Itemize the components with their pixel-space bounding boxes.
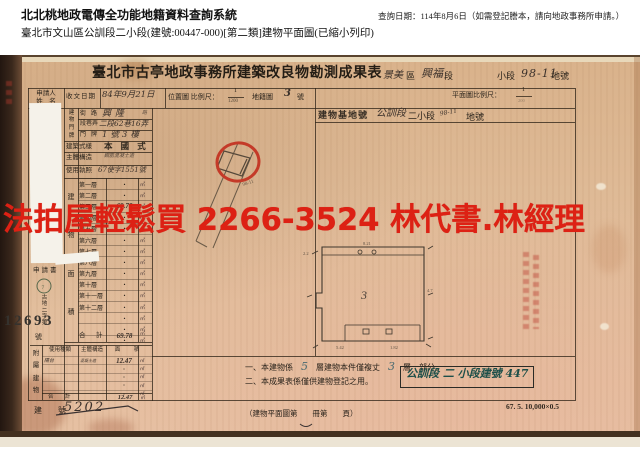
site-scribble: 98-11 [440,109,458,119]
subsection-label: 小段 [497,71,515,81]
floor-row: 第一層・㎡ [78,178,152,189]
annex-row: ・㎡ [42,364,152,372]
location-sketch-parcel [217,151,250,176]
floor-row: 第十一層・㎡ [78,290,152,301]
vertical-label-char: 面 [68,270,75,278]
annex-total-value: 12.47 [110,394,141,401]
page: 北北桃地政電傳全功能地籍資料查詢系統 查詢日期：114年8月6日（如需登記謄本，… [0,0,640,453]
plan-scale-label: 平面圖比例尺： [452,91,501,99]
floor-row: 第十二層・㎡ [78,301,152,312]
location-scale-label: 位置圖 比例尺： [168,93,219,101]
plan-floor-mark: 3 [360,288,367,302]
street-label: 街路 [80,111,102,118]
annex-area: ・ [108,374,140,381]
floor-label: 第十層 [78,280,109,289]
form-title: 臺北市古亭地政事務所建築改良物勘測成果表 [92,66,382,82]
style-value: 本 國 式 [104,142,149,152]
receive-date-value: 84年9月21日 [102,91,155,101]
vertical-label-char: 建 [69,110,75,116]
annex-table: 陽台混凝土造12.47㎡・㎡・㎡・㎡・㎡ [42,356,152,398]
plan-dimensions: 8.21 4.7 2.2 5.42 1.82 [303,241,433,350]
query-date: 查詢日期：114年8月6日（如需登記謄本，請向地政事務所申請。） [378,12,624,22]
vertical-label-char: 附 [33,350,40,357]
street-value-suffix: 路 [142,111,147,117]
receipt-number-suffix: 號 [35,333,42,341]
round-stamp [37,279,51,293]
floor-value: ・ [109,180,140,189]
annex-use: 陽台 [42,357,80,364]
floor-unit: ㎡ [140,181,151,188]
building-number-box-value: 公訓段 二 小段建號 447 [406,368,528,381]
watermark-text: 法拍屋輕鬆買 2266-3524 林代書.林經理 [3,194,585,239]
floor-value: ・ [109,291,140,300]
application-doc-label: 申請書 [33,267,59,274]
vertical-label-char: 建 [33,375,40,382]
vertical-label-char: 屬 [33,362,40,369]
floor-label: 第一層 [78,180,109,189]
floor-row: ・㎡ [78,312,152,323]
applicant-label-line1: 申請人 [36,90,56,97]
plan-dim-bottom-left: 5.42 [336,345,344,350]
paper-speck [600,323,609,330]
district-handwritten: 景美 [383,70,403,82]
scan-right-edge [634,55,640,447]
note1-prefix: 一、本建物係 [245,363,293,372]
floor-value: ・ [109,280,140,289]
faint-red-stamp-right [523,252,529,332]
sketch-parcel-label: 98-11 [242,179,255,187]
annex-row: ・㎡ [42,373,152,381]
plan-dim-right: 4.7 [427,288,433,293]
plan-dim-top: 8.21 [363,241,371,246]
annex-block-label: 附屬建物 [31,347,41,397]
site-label: 建物基地號 [318,110,368,120]
location-scale-numerator: 1 [234,88,237,95]
style-label: 建築式樣 [66,143,92,150]
license-label: 使用執照 [66,167,92,174]
floor-unit: ㎡ [140,304,151,311]
floor-label: 第十二層 [78,303,109,312]
floor-value: ・ [109,247,140,256]
lane-value: 二段62巷16弄 [99,120,148,129]
floor-value: ・ [109,303,140,312]
annex-header-area: 面 積 [106,347,152,353]
scan-left-edge [0,55,22,447]
vertical-label-char: 門 [69,125,75,131]
plan-book-page: （建物平面圖第 冊第 頁） [245,410,358,419]
document-description: 臺北市文山區公訓段二小段(建號:00447-000)[第二類]建物平面圖(已縮小… [21,28,374,40]
red-circle-mark [215,140,262,183]
annex-unit: ㎡ [140,366,152,372]
vertical-label-char: 積 [68,308,75,316]
floor-total-label: 合 計 [78,332,109,340]
note-2: 二、本成果表係僅供建物登記之用。 [245,377,373,386]
annex-total-unit: ㎡ [140,395,152,400]
annex-area: ・ [108,366,140,373]
cadastre-unit: 號 [297,93,304,101]
annex-row: ・㎡ [42,381,152,389]
floor-unit: ㎡ [140,248,151,255]
floor-label: 第十一層 [78,291,109,300]
vertical-label-char: 牌 [69,133,75,139]
annex-area: ・ [108,382,140,389]
scan-bottom-light [0,437,640,447]
annex-unit: ㎡ [140,374,152,380]
faint-red-stamp-right-2 [533,255,539,329]
annex-structure: 混凝土造 [80,358,108,364]
floor-plan [307,246,433,348]
paper-speck [596,183,606,190]
floor-unit: ㎡ [140,315,151,322]
floor-unit: ㎡ [140,292,151,299]
floor-value: ・ [109,258,140,267]
faint-red-stamp-left [6,81,12,107]
floor-total-row: 合 計 69.78 ㎡ [78,332,152,340]
annex-row: 陽台混凝土造12.47㎡ [42,356,152,364]
section-suffix: 段 [444,71,453,81]
floor-row: 第九層・㎡ [78,268,152,279]
plan-dim-left: 2.2 [303,251,309,256]
site-subsection: 二小段 [408,111,435,121]
door-block-label: 建物門牌 [66,109,77,140]
floor-unit: ㎡ [140,281,151,288]
floor-label: 第九層 [78,269,109,278]
plan-scale-numerator: 1 [522,87,525,94]
site-suffix: 地號 [466,112,484,122]
structure-value: 鋼筋混凝土造 [104,154,134,160]
annex-header-structure: 主體構造 [78,347,106,353]
redaction-strip [29,103,63,263]
door-no-label: 門牌 [80,132,102,139]
vertical-label-char: 物 [33,387,40,394]
print-code: 67. 5. 10,000×0.5 [506,403,559,412]
floor-value: ・ [109,314,140,323]
floor-unit: ㎡ [140,270,151,277]
structure-label: 主體構造 [66,154,92,161]
annex-header-use: 使用種類 [42,347,78,353]
annex-header-row: 使用種類 主體構造 面 積 [42,347,152,353]
stain [592,225,626,273]
scan-top-edge [0,55,640,57]
parcel-suffix: 地號 [551,71,569,81]
note1-survey-floor-handwritten: 3 [382,360,401,373]
license-value: 67使字1551號 [98,166,146,174]
street-value: 興隆 [102,109,128,119]
building-no-handwritten: 5202 [64,401,105,416]
site-section-handwritten: 公訓段 [376,108,406,120]
cadastre-label: 地籍圖 [252,93,273,101]
round-stamp-char: 7 [42,285,45,291]
note1-floors-handwritten: 5 [295,360,314,373]
page-scribble [300,424,312,427]
annex-unit: ㎡ [140,358,152,364]
annex-unit: ㎡ [140,383,152,389]
plan-scale-denominator: 200 [518,98,525,103]
cadastre-value: 3 [284,88,291,100]
floor-total-value: 69.78 [109,332,140,340]
plan-dim-bottom-right: 1.82 [390,345,398,350]
scanned-document: 臺北市古亭地政事務所建築改良物勘測成果表 景美 區 興福 段 小段 98-11 … [0,55,640,447]
receipt-number: 12693 [4,313,54,330]
note1-mid: 層建物本件僅複丈 [316,363,380,372]
door-no-value: 1號3樓 [102,131,142,141]
section-handwritten: 興福 [421,68,443,81]
floor-value: ・ [109,269,140,278]
district-suffix: 區 [406,71,415,81]
location-scale-denominator: 1200 [228,99,238,105]
annex-area: 12.47 [108,357,140,365]
system-title: 北北桃地政電傳全功能地籍資料查詢系統 [21,9,237,23]
scan-top-strip [0,57,640,62]
lane-label: 段巷弄 [80,121,98,128]
floor-unit: ㎡ [140,259,151,266]
receive-date-label: 收文日期 [66,93,96,100]
floor-total-unit: ㎡ [140,332,151,340]
vertical-label-char: 物 [69,117,75,123]
floor-row: 第十層・㎡ [78,279,152,290]
